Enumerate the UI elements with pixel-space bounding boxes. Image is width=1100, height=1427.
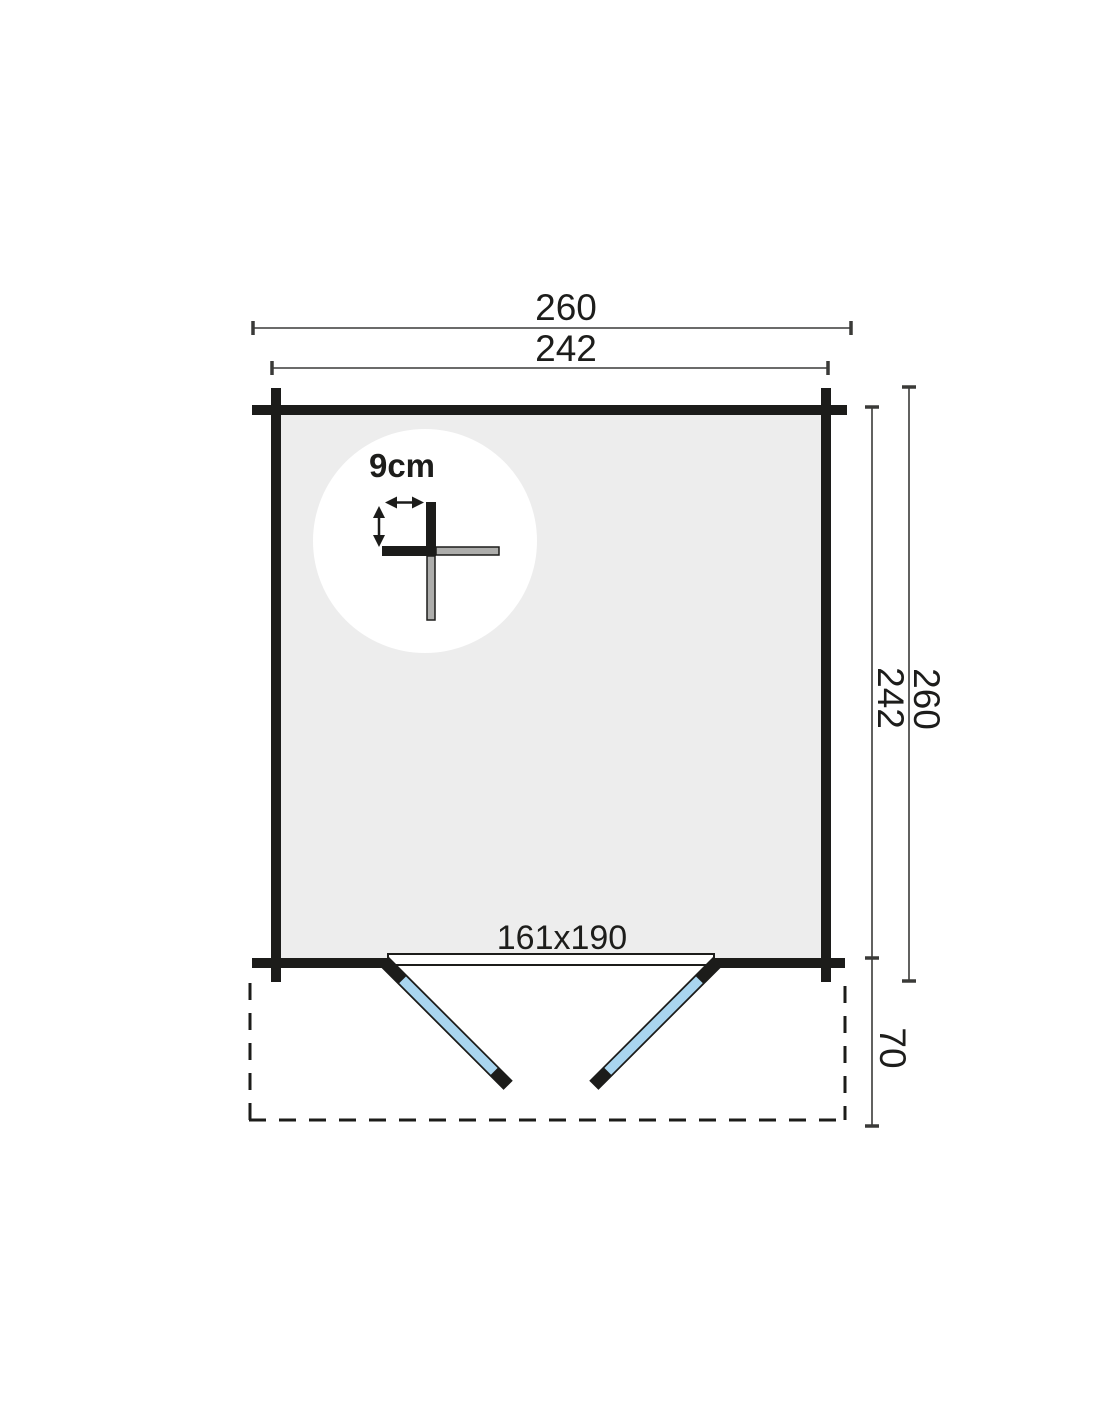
bottom-wall-left (252, 958, 388, 968)
top-wall (252, 405, 847, 415)
wall-thickness-label: 9cm (369, 447, 435, 484)
door-leaf-right (589, 957, 722, 1090)
door-size-label: 161x190 (497, 919, 627, 957)
wall-thickness-detail: 9cm (313, 429, 537, 653)
detail-log-end-vertical (427, 556, 435, 620)
dim-label-depth-inner: 242 (870, 667, 911, 729)
bottom-wall-right (714, 958, 845, 968)
detail-wall-horizontal (382, 546, 436, 556)
dim-label-terrace-depth: 70 (872, 1027, 913, 1068)
dim-label-width-outer: 260 (535, 287, 597, 328)
detail-log-end-horizontal (436, 547, 499, 555)
door-leaf-left (380, 957, 513, 1090)
floor-plan-canvas: 9cm (0, 0, 1100, 1422)
right-wall (821, 388, 831, 982)
terrace-outline (249, 983, 846, 1120)
floor-plan-svg: 9cm (0, 0, 1100, 1422)
dim-label-depth-outer: 260 (906, 668, 947, 730)
dim-label-width-inner: 242 (535, 328, 597, 369)
left-wall (271, 388, 281, 982)
